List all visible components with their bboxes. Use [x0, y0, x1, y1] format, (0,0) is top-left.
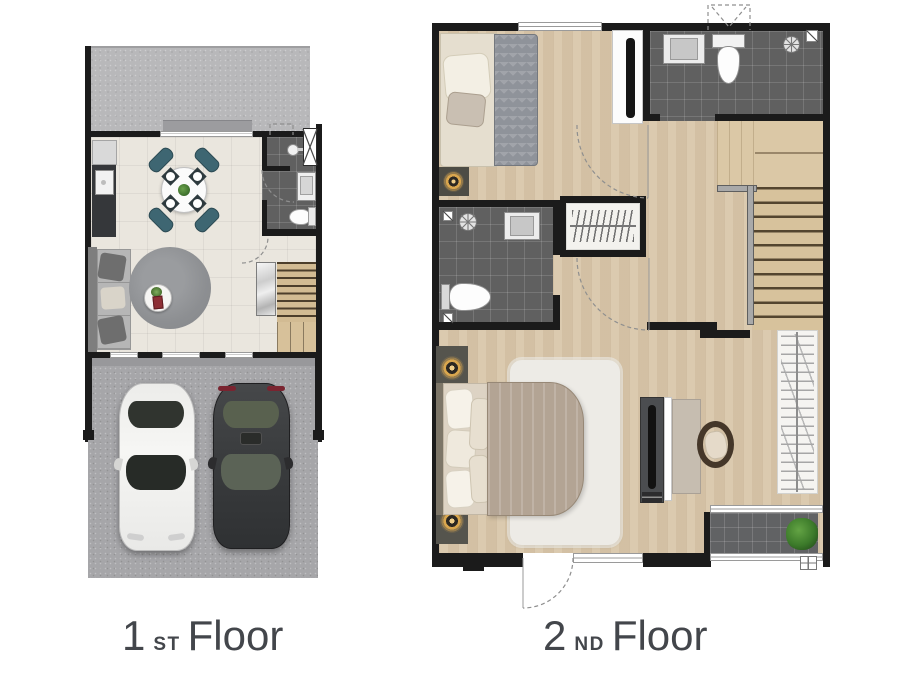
bedroom2-wall-bottom	[432, 200, 560, 207]
bedroom2-window	[518, 22, 602, 31]
bathroom2-sink-basin	[670, 38, 698, 60]
stairs2-treads	[753, 187, 823, 330]
balcony-drain-grate	[800, 556, 817, 570]
closet-wall-bottom	[560, 250, 646, 257]
lamp-glow-ring	[440, 356, 464, 380]
bathroom2-drain	[806, 30, 818, 42]
bathroom2-wall-bottom-b	[715, 114, 823, 121]
floor2-number: 2	[543, 612, 567, 660]
bedroom2-floor-lamp	[439, 167, 469, 196]
lamp-glow-ring	[443, 171, 464, 192]
master-wall-top-left	[432, 322, 560, 330]
bathroom1-shower-head	[459, 213, 477, 231]
floor1-ordinal: ST	[153, 634, 180, 656]
floor2-plan	[0, 0, 900, 673]
bed2-pillow-2	[445, 91, 486, 128]
bedroom2-tv	[626, 38, 635, 118]
closet-rail	[570, 225, 636, 227]
master-desk-edge	[664, 397, 672, 501]
bathroom1-wall-right-upper	[553, 207, 560, 255]
floor1-word: Floor	[188, 612, 284, 660]
master-tv	[648, 405, 656, 489]
stairs2-landing	[717, 121, 823, 187]
f2-wall-bottom-stub	[463, 560, 484, 571]
bathroom2-wall-left	[643, 31, 650, 121]
f2-wall-bottom-mid	[643, 553, 710, 567]
master-striped-blanket	[487, 382, 584, 516]
floor1-label: 1 ST Floor	[122, 612, 283, 660]
bathroom2-wall-bottom-a	[643, 114, 660, 121]
bed2-zigzag-blanket	[494, 34, 538, 166]
closet-wall-right	[640, 196, 646, 257]
master-wall-top-right	[647, 322, 717, 330]
floor2-ordinal: ND	[574, 634, 604, 656]
bathroom2-shower-head	[783, 36, 800, 53]
balcony-door-frame-top	[710, 505, 823, 513]
bathroom1-sink-basin	[510, 216, 534, 236]
master-bottom-window	[573, 553, 643, 563]
stairs2-landing-line	[755, 152, 823, 154]
bathroom1-drain-top	[443, 211, 453, 221]
floor2-label: 2 ND Floor	[543, 612, 708, 660]
master-media-box	[642, 492, 662, 503]
stairs2-wall-stub	[700, 330, 750, 338]
stairs2-railing-side	[747, 185, 754, 325]
wardrobe-rail	[796, 332, 798, 492]
floor1-number: 1	[122, 612, 146, 660]
closet-wall-top	[560, 196, 646, 203]
floor-plan-canvas: 1 ST Floor 2 ND Floor	[0, 0, 900, 673]
f2-wall-right	[823, 23, 830, 567]
floor2-word: Floor	[612, 612, 708, 660]
balcony-plant	[786, 518, 818, 550]
